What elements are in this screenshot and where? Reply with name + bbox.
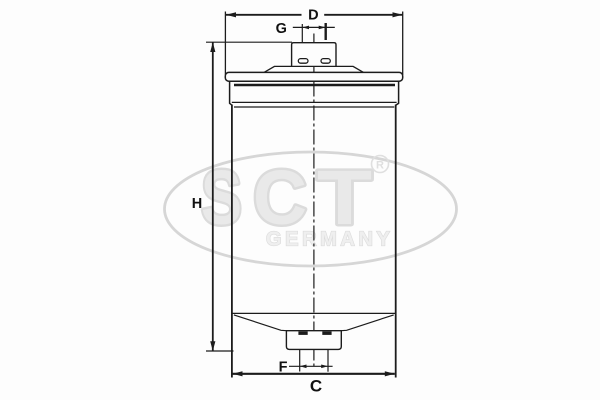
svg-text:C: C <box>310 377 322 396</box>
svg-text:R: R <box>376 160 384 172</box>
svg-text:G: G <box>276 21 287 37</box>
svg-text:D: D <box>308 7 318 23</box>
svg-text:H: H <box>192 196 202 212</box>
svg-text:GERMANY: GERMANY <box>266 229 393 251</box>
svg-text:S: S <box>201 155 242 241</box>
